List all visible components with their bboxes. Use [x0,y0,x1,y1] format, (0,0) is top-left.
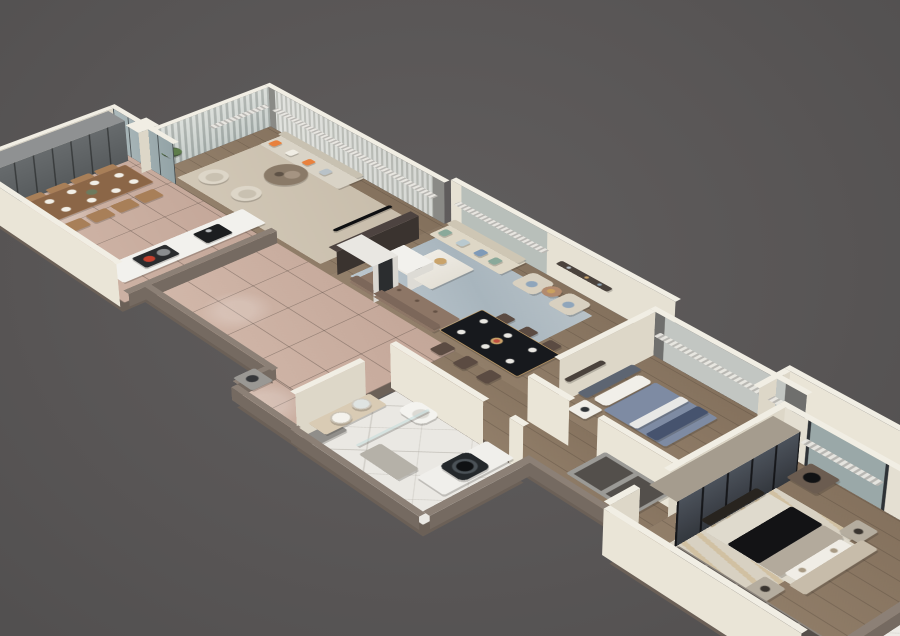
living1-window-wall [148,85,269,132]
scene-background [0,0,900,636]
bedroom2-window-wall [650,306,812,395]
black-table-chair [452,355,479,370]
apartment-3d-model [0,78,900,636]
